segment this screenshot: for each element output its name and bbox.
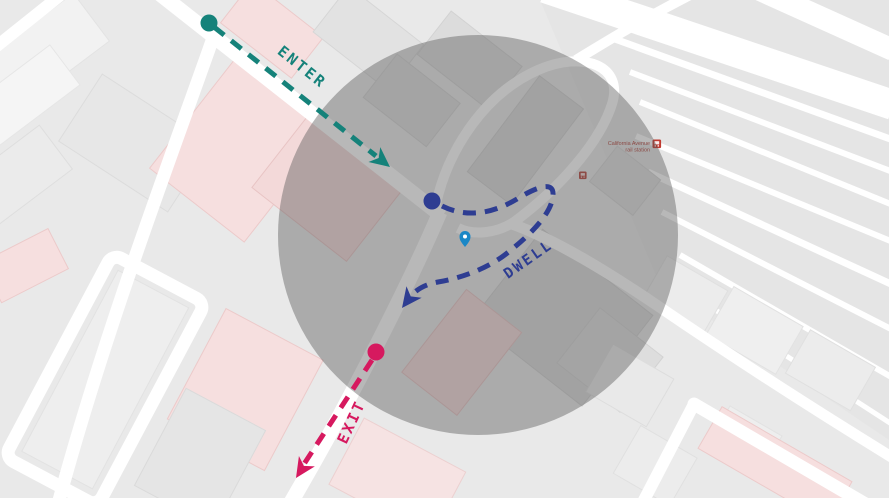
- map-svg: California Avenue rail station ENTER DWE…: [0, 0, 889, 498]
- exit-start-dot: [368, 344, 385, 361]
- map-canvas: California Avenue rail station ENTER DWE…: [0, 0, 889, 498]
- geofence-circle: [278, 35, 678, 435]
- dwell-start-dot: [424, 193, 441, 210]
